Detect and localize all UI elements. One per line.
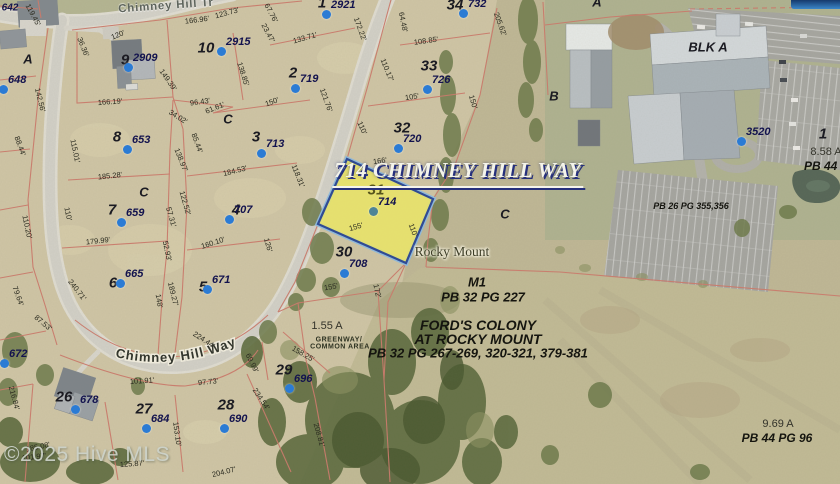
- lot-number-label: 27: [136, 401, 153, 418]
- parcel-dot: [203, 285, 212, 294]
- parcel-dot: [257, 149, 266, 158]
- parcel-dot: [116, 279, 125, 288]
- parcel-dot: [124, 63, 133, 72]
- dimension-label: 57.31': [165, 206, 178, 227]
- dimension-label: 64.48': [397, 11, 409, 32]
- lot-number-label: 33: [421, 58, 438, 75]
- area-label: PB 32 PG 227: [441, 290, 525, 305]
- dimension-label: 79.64': [11, 285, 25, 307]
- area-label: COMMON AREA: [310, 344, 370, 351]
- dimension-label: 115.01': [69, 139, 81, 164]
- lot-number-label: 28: [218, 397, 235, 414]
- dimension-label: 123.73': [214, 6, 239, 20]
- parcel-dot: [217, 47, 226, 56]
- block-letter-label: A: [592, 0, 601, 10]
- dimension-label: 184.53': [222, 164, 247, 177]
- parcel-dot: [340, 269, 349, 278]
- map-labels-layer: 123456789102627282930313233341AABCCCBLK …: [0, 0, 840, 484]
- dimension-label: 149.39': [158, 68, 178, 92]
- house-number-label: 2909: [133, 52, 157, 64]
- lot-number-label: 10: [198, 40, 215, 57]
- parcel-dot: [291, 84, 300, 93]
- dimension-label: 97.73': [198, 377, 219, 387]
- house-number-label: 648: [8, 74, 26, 86]
- dimension-label: 234.54': [251, 387, 271, 411]
- house-number-label: 726: [432, 74, 450, 86]
- dimension-label: 172': [372, 283, 382, 298]
- dimension-label: 69.99': [244, 352, 260, 373]
- dimension-label: 126': [262, 237, 273, 252]
- parcel-dot: [423, 85, 432, 94]
- dimension-label: 160.10': [200, 236, 225, 251]
- block-letter-label: A: [23, 52, 32, 67]
- dimension-label: 121.76': [318, 87, 333, 112]
- area-label: PB 26 PG 355,356: [653, 201, 729, 211]
- house-number-label: 2921: [331, 0, 355, 11]
- house-number-label: 678: [80, 394, 98, 406]
- house-number-label: 653: [132, 134, 150, 146]
- dimension-label: 185.28': [97, 171, 122, 181]
- parcel-dot: [369, 207, 378, 216]
- dimension-label: 118.31': [290, 164, 306, 189]
- area-label: PB 44 PG 96: [742, 431, 813, 445]
- dimension-label: 166.96': [184, 15, 209, 25]
- house-number-label: 684: [151, 413, 169, 425]
- subject-address-title: 714 CHIMNEY HILL WAY: [334, 158, 581, 186]
- corner-button[interactable]: [791, 0, 840, 9]
- area-label: 642: [2, 3, 19, 14]
- parcel-dot: [220, 424, 229, 433]
- dimension-label: 23.47': [260, 22, 276, 43]
- lot-number-label: 29: [276, 362, 293, 379]
- dimension-label: 87.53': [33, 314, 53, 333]
- block-letter-label: BLK A: [688, 40, 727, 55]
- subject-address-text: 714 CHIMNEY HILL WAY: [334, 158, 581, 182]
- lot-number-label: 2: [289, 65, 297, 82]
- dimension-label: 240.71': [67, 278, 88, 302]
- dimension-label: 224.44': [192, 330, 217, 350]
- lot-number-label: 1: [819, 126, 827, 143]
- dimension-label: 120': [110, 29, 126, 41]
- dimension-label: 179.99': [85, 236, 110, 246]
- dimension-label: 110.17': [379, 58, 395, 83]
- dimension-label: 205.62': [492, 11, 507, 36]
- lot-number-label: 3: [252, 129, 260, 146]
- dimension-label: 52.93': [161, 240, 173, 261]
- dimension-label: 142.56': [33, 87, 46, 112]
- dimension-label: 153.10': [172, 421, 183, 446]
- dimension-label: 88.44': [13, 135, 27, 157]
- dimension-label: 108.85': [413, 36, 438, 47]
- house-number-label: 708: [349, 258, 367, 270]
- plat-map: Chimney Hill Way 12345678910262728293031…: [0, 0, 840, 484]
- house-number-label: 659: [126, 207, 144, 219]
- dimension-label: 36.36': [76, 36, 91, 58]
- dimension-label: 110.20': [21, 215, 33, 240]
- dimension-label: 148': [154, 293, 164, 308]
- dimension-label: 155': [323, 282, 338, 292]
- area-label: GREENWAY/: [316, 337, 363, 344]
- dimension-label: 208.81': [312, 422, 326, 447]
- dimension-label: 216.84': [7, 385, 21, 410]
- house-number-label: 2915: [226, 36, 250, 48]
- parcel-dot: [0, 359, 9, 368]
- dimension-label: 85.44': [190, 132, 204, 154]
- dimension-label: 105': [405, 92, 420, 101]
- house-number-label: 720: [403, 133, 421, 145]
- dimension-label: 101.91': [130, 376, 155, 385]
- lot-number-label: 26: [56, 389, 73, 406]
- dimension-label: 119.45': [24, 3, 42, 28]
- parcel-dot: [322, 10, 331, 19]
- dimension-label: 150': [264, 96, 280, 108]
- block-letter-label: B: [549, 89, 558, 104]
- house-number-label: 732: [468, 0, 486, 10]
- parcel-dot: [225, 215, 234, 224]
- dimension-label: 110': [407, 222, 419, 237]
- dimension-label: 138.85': [236, 61, 251, 86]
- parcel-dot: [459, 9, 468, 18]
- dimension-label: 122.52': [178, 190, 192, 215]
- parcel-dot: [737, 137, 746, 146]
- lot-number-label: 8: [113, 129, 121, 146]
- area-label: 1.55 A: [311, 320, 342, 332]
- house-number-label: 672: [9, 348, 27, 360]
- area-label: M1: [468, 275, 486, 290]
- parcel-dot: [0, 85, 8, 94]
- house-number-label: 707: [234, 204, 252, 216]
- house-number-label: 713: [266, 138, 284, 150]
- house-number-label: 665: [125, 268, 143, 280]
- dimension-label: 67.76': [263, 2, 279, 23]
- dimension-label: 204.07': [211, 465, 236, 478]
- house-number-label: 719: [300, 73, 318, 85]
- block-letter-label: C: [223, 112, 232, 127]
- block-letter-label: C: [139, 185, 148, 200]
- title-underline: [332, 186, 583, 189]
- area-label: PB 44 PG: [804, 159, 840, 173]
- parcel-dot: [117, 218, 126, 227]
- dimension-label: 150': [467, 94, 478, 109]
- parcel-dot: [123, 145, 132, 154]
- dimension-label: 155': [348, 221, 363, 232]
- house-number-label: 714: [378, 196, 396, 208]
- lot-number-label: 7: [108, 202, 116, 219]
- city-label: Rocky Mount: [415, 244, 490, 260]
- house-number-label: 3520: [746, 126, 770, 138]
- dimension-label: 110': [63, 207, 73, 222]
- parcel-dot: [142, 424, 151, 433]
- dimension-label: 172.22': [352, 16, 367, 41]
- parcel-dot: [285, 384, 294, 393]
- house-number-label: 671: [212, 274, 230, 286]
- area-label: 8.58 A: [810, 146, 840, 158]
- area-label: 9.69 A: [762, 418, 793, 430]
- dimension-label: 138.97': [173, 147, 189, 172]
- house-number-label: 690: [229, 413, 247, 425]
- mls-watermark: ©2025 Hive MLS: [4, 443, 170, 467]
- dimension-label: 166.19': [98, 97, 123, 106]
- parcel-dot: [71, 405, 80, 414]
- area-label: PB 32 PG 267-269, 320-321, 379-381: [368, 346, 588, 361]
- block-letter-label: C: [500, 207, 509, 222]
- dimension-label: 133.71': [292, 31, 317, 45]
- parcel-dot: [394, 144, 403, 153]
- house-number-label: 696: [294, 373, 312, 385]
- dimension-label: 34.02': [167, 108, 188, 125]
- dimension-label: 189.27': [166, 281, 179, 306]
- dimension-label: 110': [356, 120, 368, 135]
